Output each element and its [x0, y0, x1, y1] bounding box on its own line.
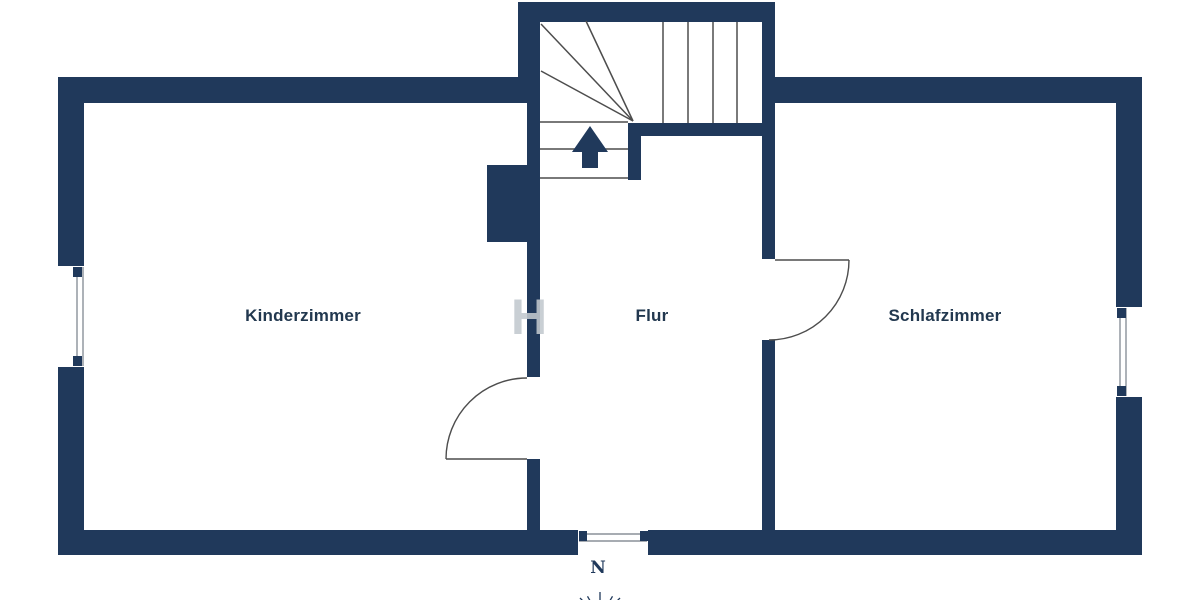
- compass-rose-icon: [574, 592, 626, 600]
- watermark-letter: H: [511, 292, 547, 342]
- window-bottom: [579, 531, 648, 541]
- stair-winder-fan: [540, 21, 633, 122]
- stair-upper-treads: [663, 22, 737, 123]
- window-right: [1117, 308, 1126, 396]
- window-left: [73, 267, 83, 366]
- door-swing-arc: [769, 260, 849, 340]
- stair-up-arrow-icon: [572, 126, 608, 168]
- door-schlafzimmer: [769, 260, 849, 340]
- door-swing-arc: [446, 378, 527, 459]
- door-kinderzimmer: [446, 378, 527, 459]
- floorplan-symbols: [0, 0, 1200, 600]
- floorplan-canvas: Kinderzimmer Flur Schlafzimmer N H: [0, 0, 1200, 600]
